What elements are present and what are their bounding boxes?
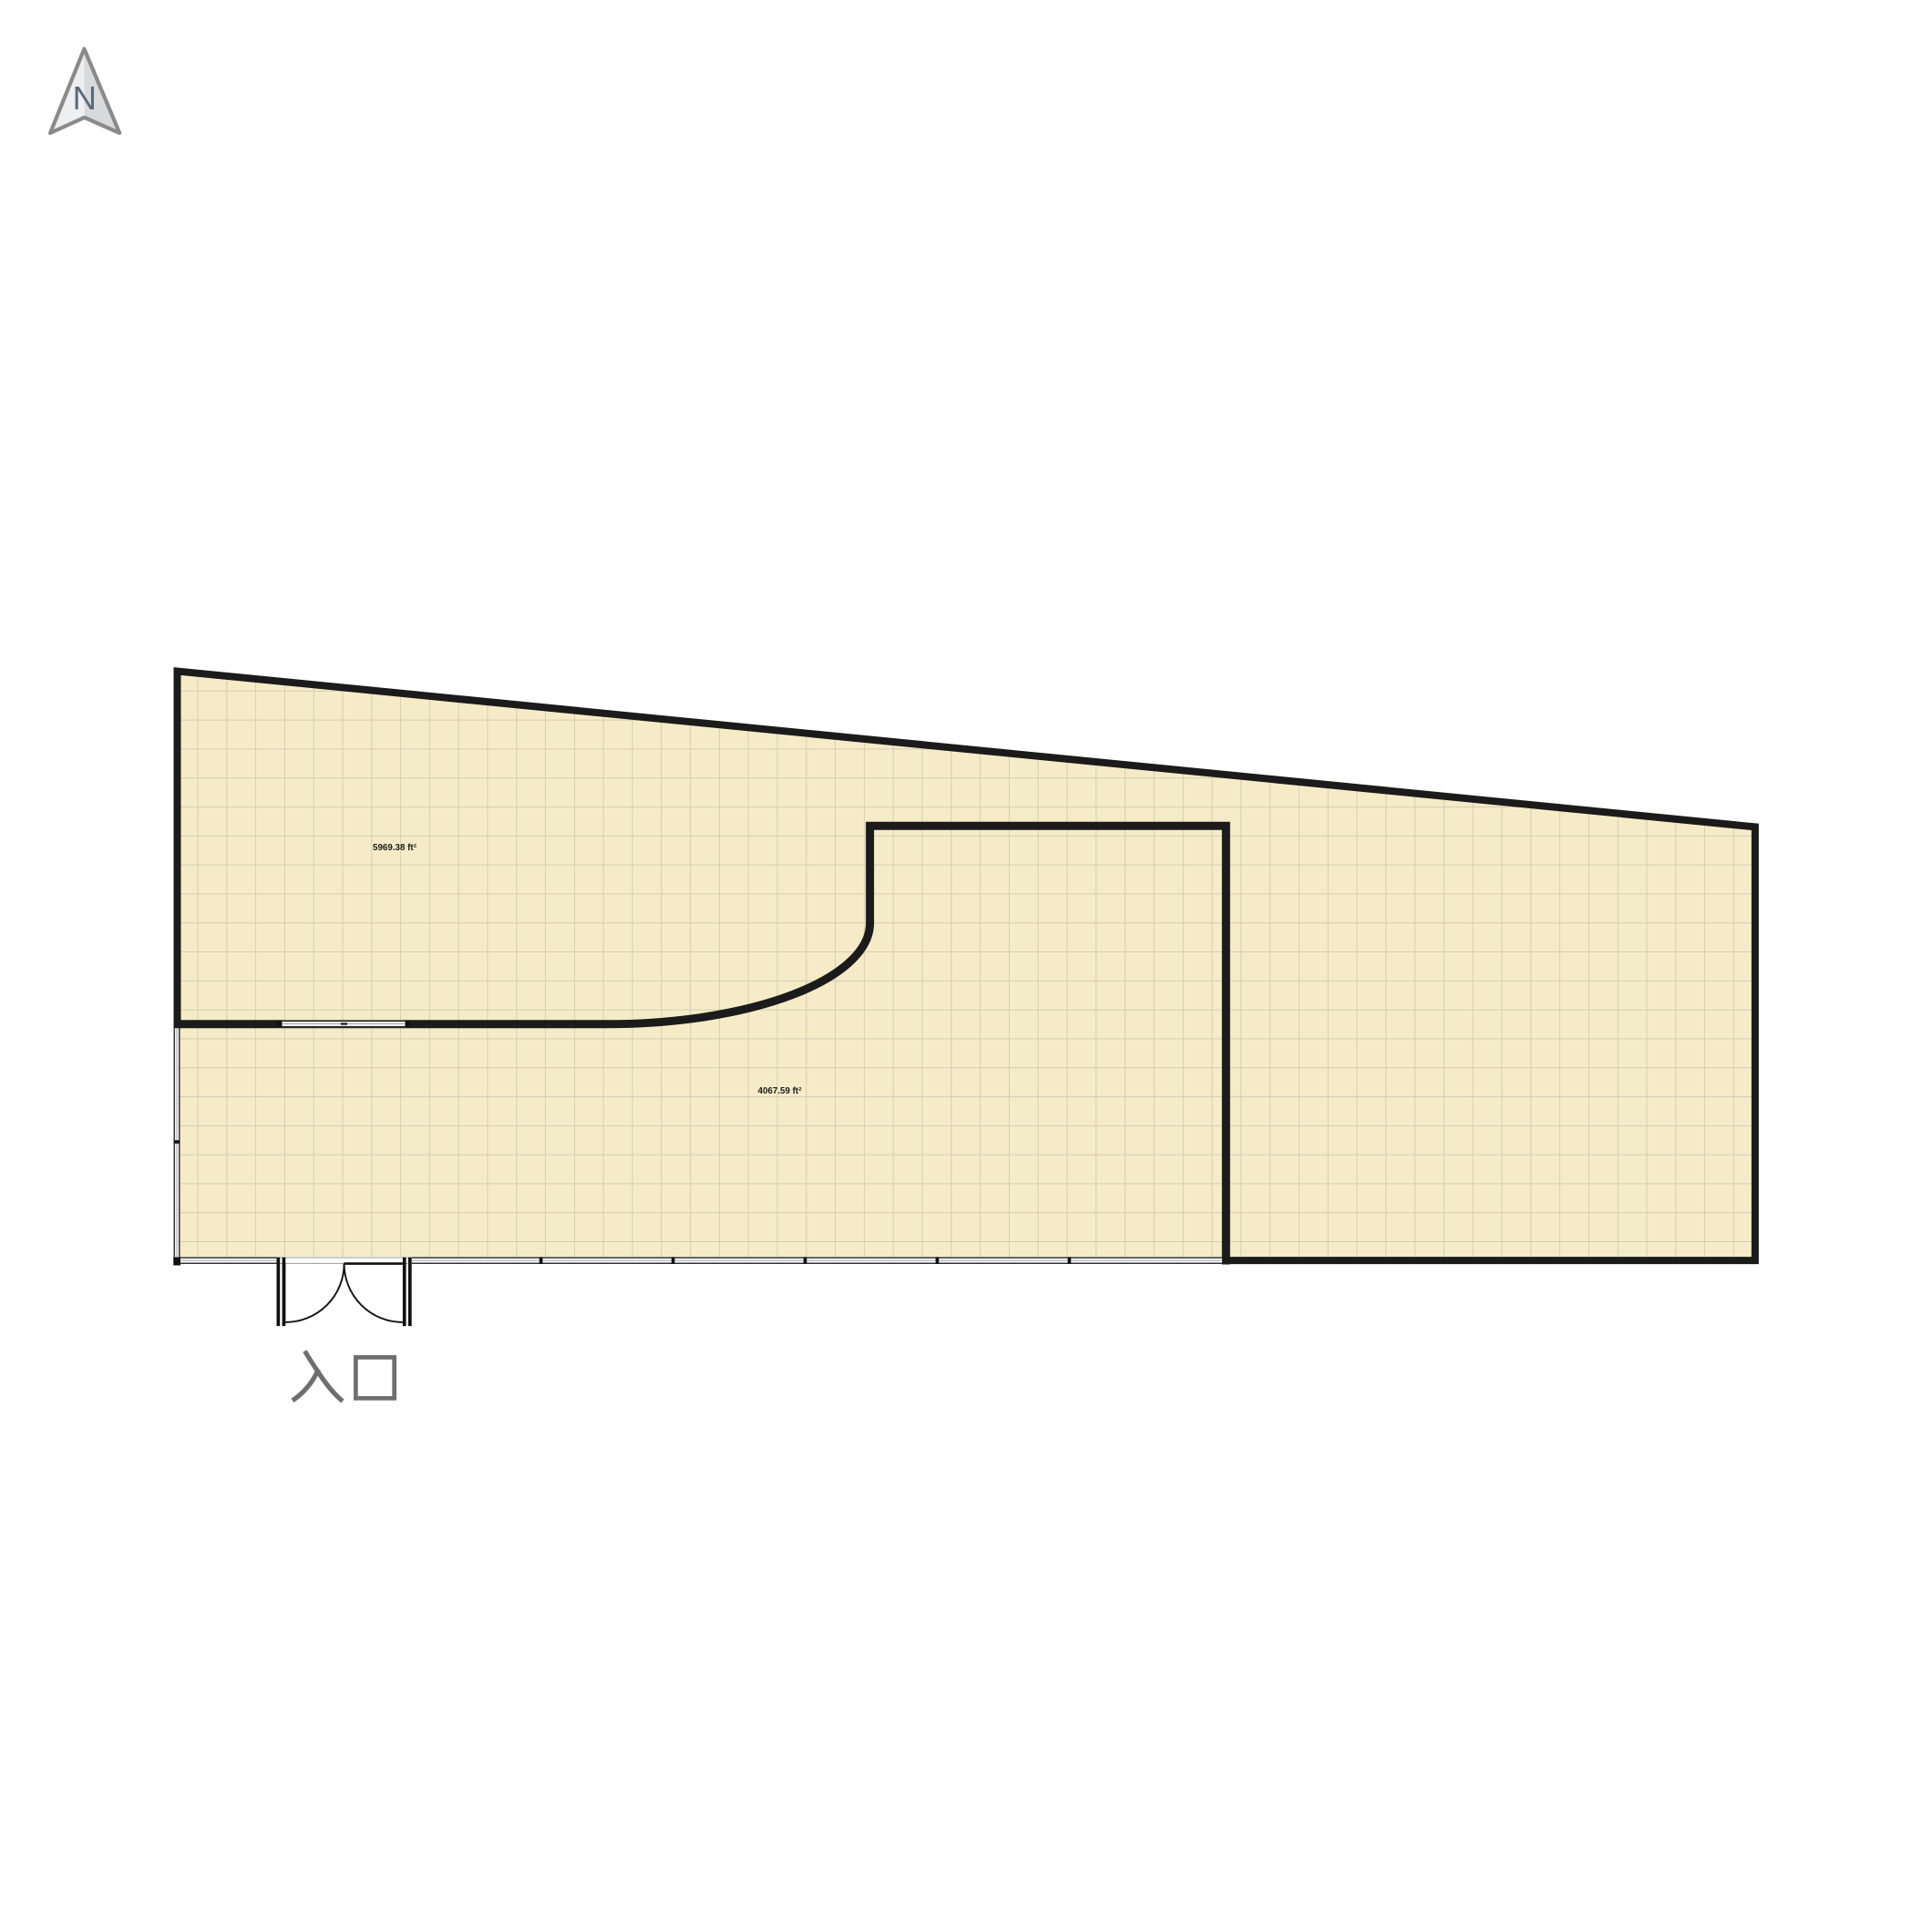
svg-text:4067.59 ft²: 4067.59 ft²	[758, 1086, 803, 1096]
svg-text:N: N	[73, 79, 97, 117]
svg-text:5969.38 ft²: 5969.38 ft²	[373, 843, 417, 853]
